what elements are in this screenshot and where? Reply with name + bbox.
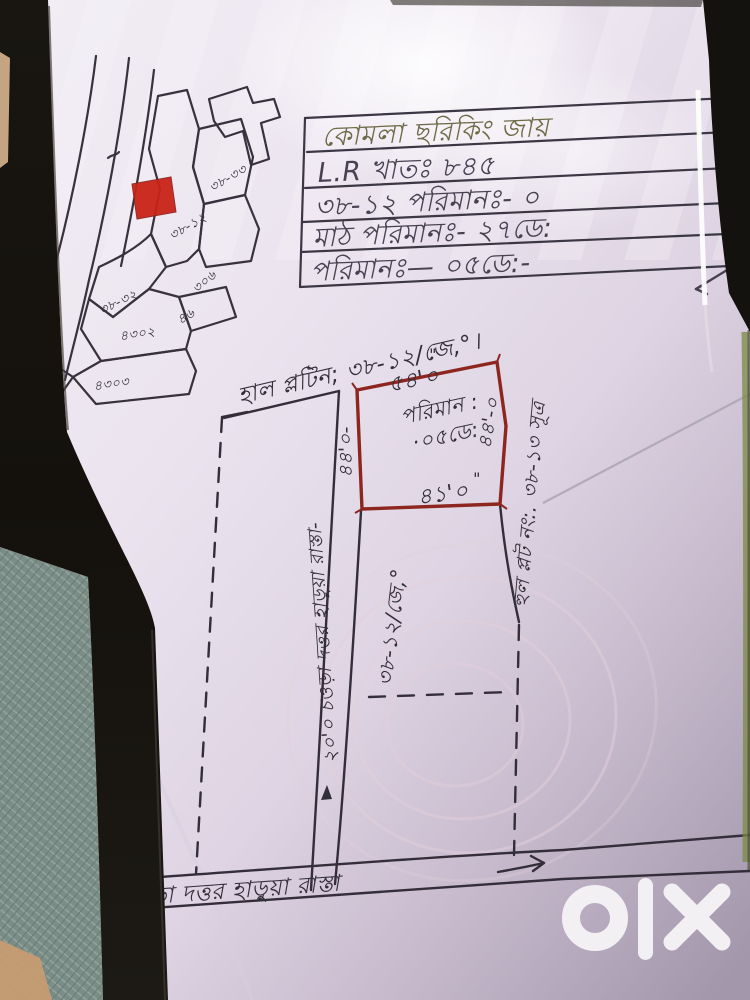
sketch-canvas: ৩৮-৩৩ ৩৮-১২ ৩৮-৩২ ৩০৬ ৪৬ ৪৩০২ ৪৩০৩ ৩৮ কো… xyxy=(0,0,750,1000)
olx-letter-bar xyxy=(638,878,653,960)
photo-of-land-sketch: ৩৮-৩৩ ৩৮-১২ ৩৮-৩২ ৩০৬ ৪৬ ৪৩০২ ৪৩০৩ ৩৮ কো… xyxy=(0,0,750,1000)
mini-map-highlighted-plot xyxy=(132,177,176,219)
plot-left-length: ৪৪'০- xyxy=(335,426,357,478)
info-table-text: কোমলা ছরিকিং জায় L.R খাতঃ ৮৪৫ ৩৮-১২ পরি… xyxy=(310,110,555,288)
ditto-mark-bottom: " xyxy=(473,469,481,488)
right-edge-olive-sliver xyxy=(745,332,747,862)
ditto-mark-top: " xyxy=(429,345,437,364)
fabric-background xyxy=(0,547,103,1000)
